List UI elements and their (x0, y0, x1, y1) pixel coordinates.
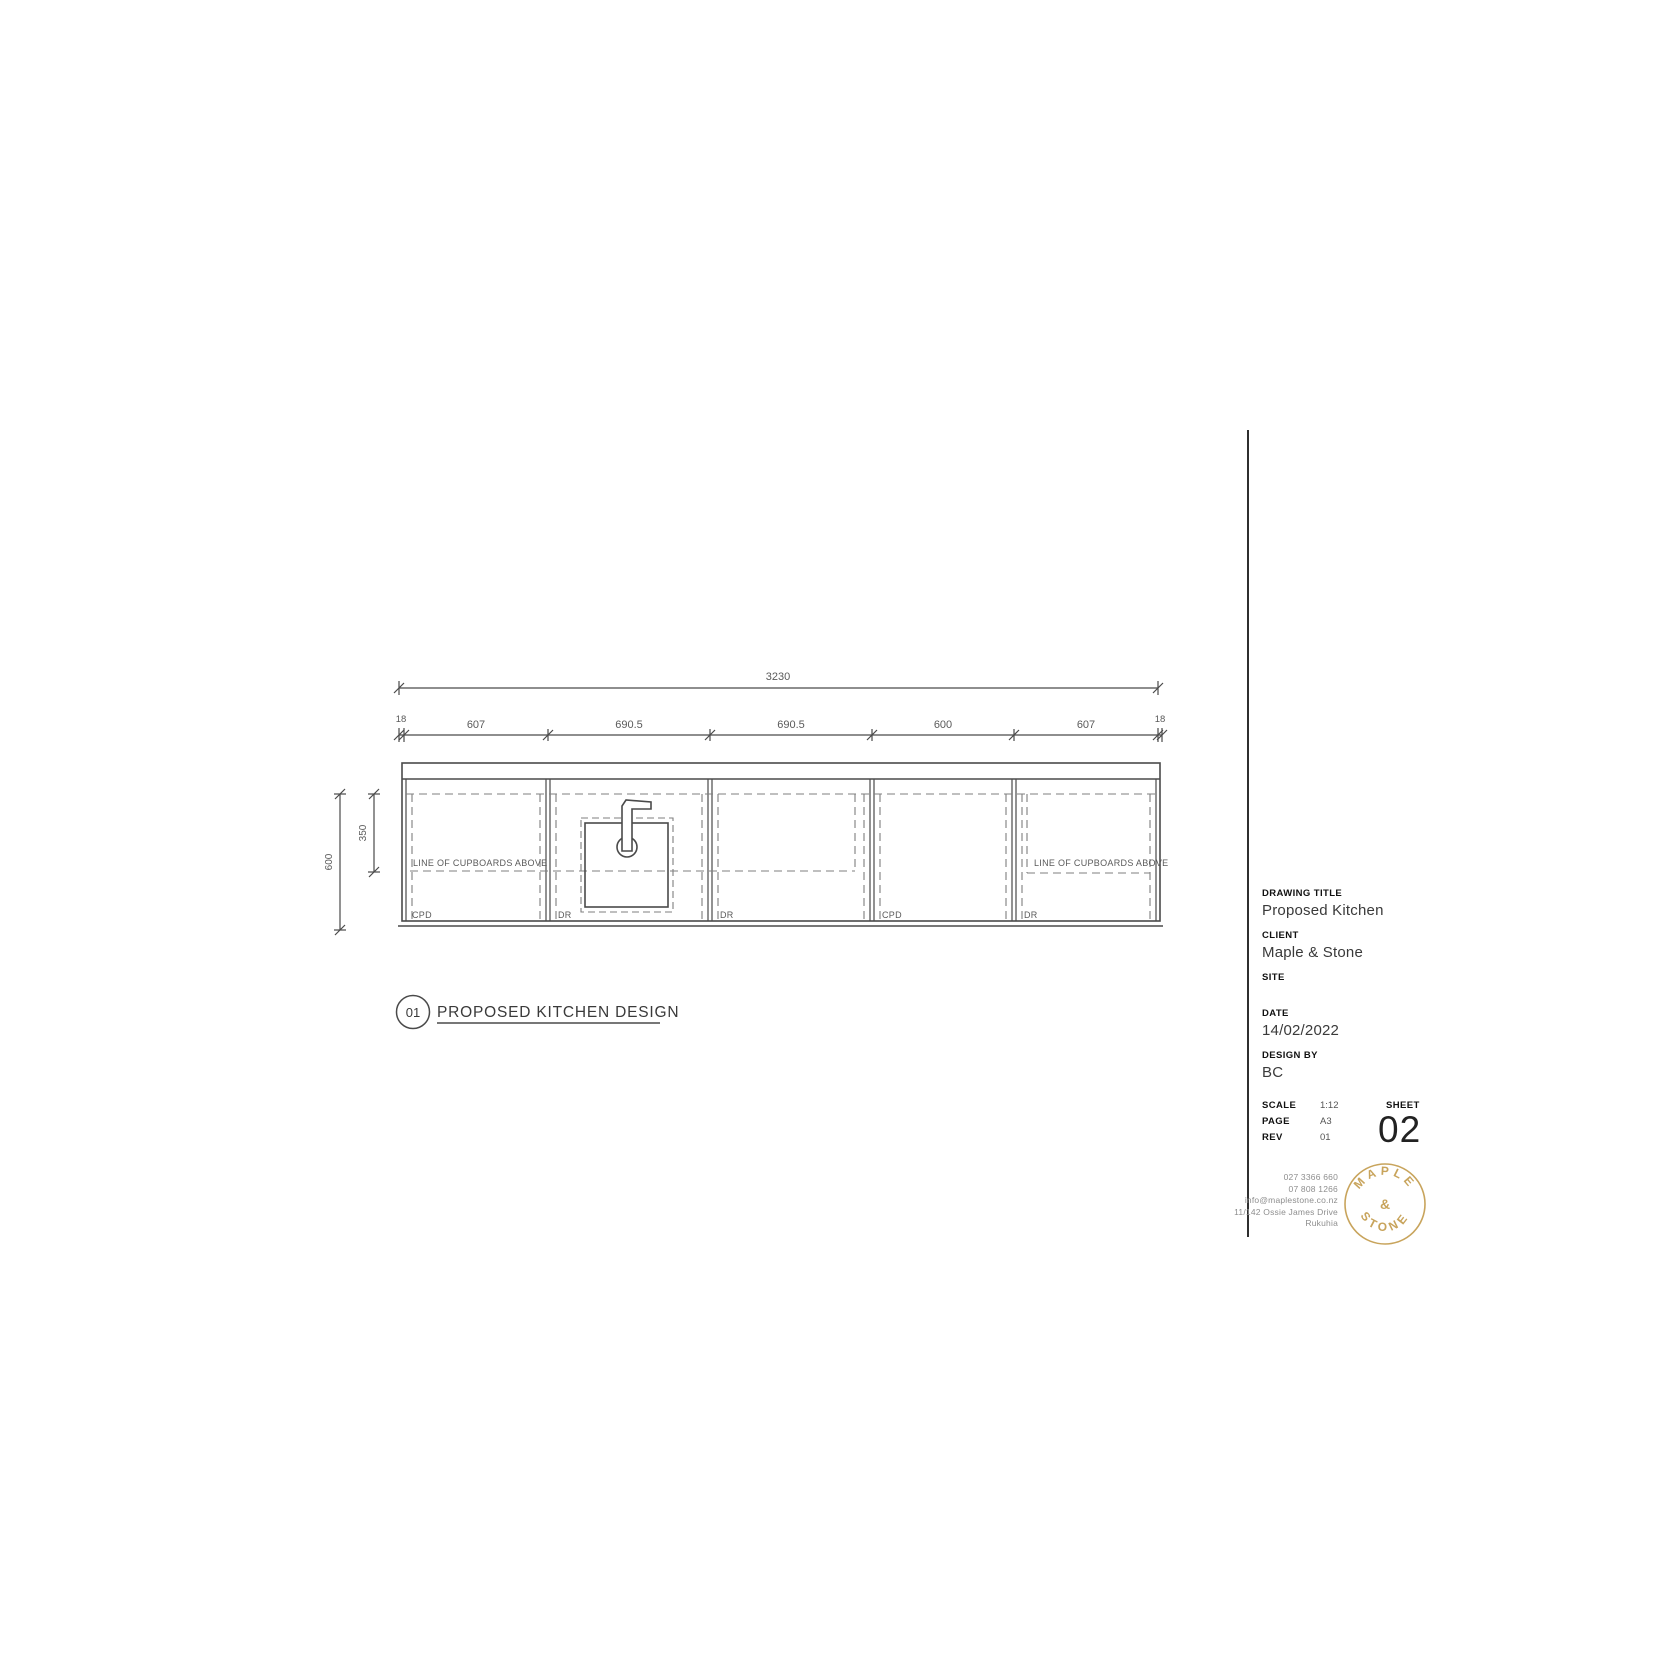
cupboards-note-right: LINE OF CUPBOARDS ABOVE (1034, 858, 1168, 868)
kitchen-plan-drawing: 3230 18 607 690.5 690.5 600 607 18 600 3… (0, 0, 1676, 1676)
unit-label-dr-1: DR (558, 910, 572, 920)
site-label: SITE (1262, 972, 1285, 983)
unit-label-dr-2: DR (720, 910, 734, 920)
drawing-sheet: 3230 18 607 690.5 690.5 600 607 18 600 3… (0, 0, 1676, 1676)
date-label: DATE (1262, 1008, 1339, 1019)
logo-arc-top-text: MAPLE (1351, 1164, 1420, 1192)
scale-value: 1:12 (1320, 1100, 1339, 1111)
dim-seg-18-right: 18 (1155, 714, 1166, 725)
contact-phone2: 07 808 1266 (1188, 1184, 1338, 1196)
contact-address2: Rukuhia (1188, 1218, 1338, 1230)
page-value: A3 (1320, 1116, 1332, 1127)
maple-and-stone-logo: MAPLE & STONE (1342, 1161, 1428, 1247)
logo-arc-bottom-text: STONE (1358, 1209, 1413, 1234)
dimension-line-upper (368, 789, 380, 877)
drawing-title-value: Proposed Kitchen (1262, 902, 1384, 919)
drawing-title-label: DRAWING TITLE (1262, 888, 1384, 899)
dim-seg-690a: 690.5 (615, 719, 643, 731)
dim-total-label: 3230 (766, 671, 790, 683)
dim-seg-600: 600 (934, 719, 952, 731)
dimension-line-total (394, 681, 1163, 695)
design-by-label: DESIGN BY (1262, 1050, 1318, 1061)
unit-label-cpd-1: CPD (412, 910, 432, 920)
dimension-line-height (334, 789, 346, 935)
dim-seg-607-a: 607 (467, 719, 485, 731)
date-value: 14/02/2022 (1262, 1022, 1339, 1039)
dim-height-label: 600 (324, 853, 335, 870)
contact-email: info@maplestone.co.nz (1188, 1195, 1338, 1207)
scale-label: SCALE (1262, 1100, 1320, 1111)
svg-text:STONE: STONE (1358, 1209, 1413, 1234)
contact-block: 027 3366 660 07 808 1266 info@maplestone… (1188, 1172, 1338, 1230)
rev-value: 01 (1320, 1132, 1331, 1143)
client-field: CLIENT Maple & Stone (1262, 930, 1363, 961)
site-field: SITE (1262, 972, 1285, 983)
client-value: Maple & Stone (1262, 944, 1363, 961)
dim-seg-607-b: 607 (1077, 719, 1095, 731)
unit-label-dr-3: DR (1024, 910, 1038, 920)
design-by-value: BC (1262, 1064, 1318, 1081)
contact-address1: 11/142 Ossie James Drive (1188, 1207, 1338, 1219)
rev-label: REV (1262, 1132, 1320, 1143)
drawing-title-field: DRAWING TITLE Proposed Kitchen (1262, 888, 1384, 919)
dim-seg-18-left: 18 (396, 714, 407, 725)
sheet-number: 02 (1378, 1111, 1421, 1148)
dim-seg-690b: 690.5 (777, 719, 805, 731)
design-by-field: DESIGN BY BC (1262, 1050, 1318, 1081)
page-label: PAGE (1262, 1116, 1320, 1127)
contact-phone1: 027 3366 660 (1188, 1172, 1338, 1184)
cabinet-dividers (406, 779, 1156, 921)
svg-text:MAPLE: MAPLE (1351, 1164, 1420, 1192)
cupboards-dashed-lines (406, 794, 1156, 919)
cupboards-note-left: LINE OF CUPBOARDS ABOVE (413, 858, 547, 868)
title-block-divider (1247, 430, 1249, 1237)
sheet-field: SHEET 02 (1378, 1100, 1421, 1148)
date-field: DATE 14/02/2022 (1262, 1008, 1339, 1039)
unit-label-cpd-2: CPD (882, 910, 902, 920)
callout-number: 01 (406, 1005, 420, 1020)
dim-upper-label: 350 (358, 824, 369, 841)
logo-ampersand: & (1380, 1196, 1390, 1212)
bench-outline (398, 763, 1163, 926)
client-label: CLIENT (1262, 930, 1363, 941)
callout-title: PROPOSED KITCHEN DESIGN (437, 1004, 679, 1021)
tap-icon (617, 800, 651, 857)
